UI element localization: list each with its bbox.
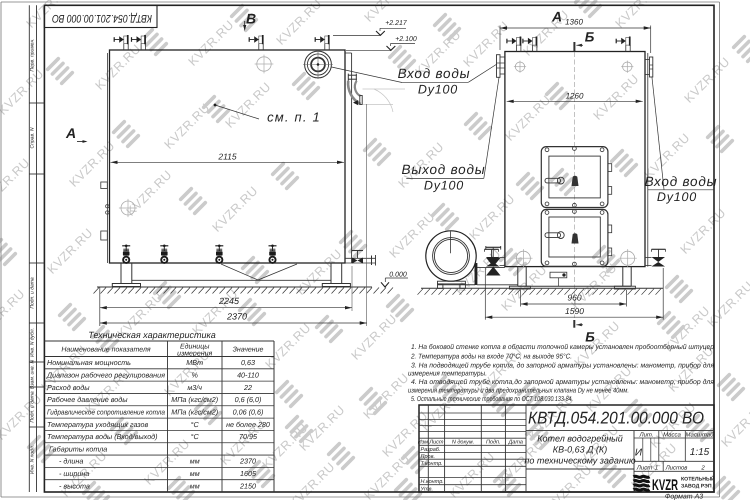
svg-text:Т.контр.: Т.контр. — [421, 461, 443, 467]
svg-text:- длина: - длина — [59, 457, 83, 466]
svg-text:Dy100: Dy100 — [657, 190, 697, 204]
svg-text:1360: 1360 — [565, 18, 583, 27]
svg-text:Выход воды: Выход воды — [402, 162, 486, 177]
svg-text:КВТД.054.201.00.000 ВО: КВТД.054.201.00.000 ВО — [52, 12, 152, 24]
svg-text:Взам. инв. N: Взам. инв. N — [29, 360, 35, 390]
svg-text:КВ-0,63 Д (К): КВ-0,63 Д (К) — [553, 445, 607, 455]
svg-text:мм: мм — [190, 457, 200, 466]
svg-text:4. На отводящей трубе котла,д: 4. На отводящей трубе котла,до запорной … — [411, 378, 714, 386]
svg-text:Масса: Масса — [663, 431, 681, 438]
svg-text:Номинальная мощность: Номинальная мощность — [47, 358, 131, 367]
svg-text:Наименование показателя: Наименование показателя — [61, 347, 151, 354]
svg-text:Гидравлическое сопротивление к: Гидравлическое сопротивление котла — [47, 407, 165, 416]
svg-text:1605: 1605 — [240, 469, 257, 478]
svg-text:2370: 2370 — [226, 312, 247, 322]
svg-text:2: 2 — [700, 464, 705, 471]
svg-text:МПа (кгс/см2): МПа (кгс/см2) — [171, 407, 218, 416]
svg-text:2. Температура воды на входе: 2. Температура воды на входе 70°С, на вы… — [410, 353, 572, 361]
svg-text:Подп. и дата: Подп. и дата — [29, 391, 35, 423]
svg-text:2115: 2115 — [217, 152, 237, 162]
svg-text:Единицы: Единицы — [180, 342, 210, 350]
svg-text:Вход воды: Вход воды — [398, 66, 471, 81]
svg-text:1260: 1260 — [566, 92, 584, 101]
svg-text:Б: Б — [585, 330, 595, 345]
svg-text:2150: 2150 — [239, 481, 256, 490]
svg-text:м3/ч: м3/ч — [187, 383, 202, 392]
svg-text:В: В — [246, 11, 256, 27]
svg-text:Изм.: Изм. — [418, 440, 430, 446]
svg-text:960: 960 — [567, 293, 581, 303]
svg-text:Дата: Дата — [507, 440, 523, 446]
svg-text:измерения температуры.: измерения температуры. — [408, 371, 487, 378]
svg-text:0.000: 0.000 — [389, 272, 407, 279]
svg-text:МПа (кгс/см2): МПа (кгс/см2) — [171, 395, 218, 404]
svg-text:Инв. N подл.: Инв. N подл. — [29, 445, 35, 474]
svg-text:Подп.: Подп. — [486, 440, 501, 446]
svg-text:1: 1 — [655, 464, 658, 471]
svg-text:Н.контр.: Н.контр. — [421, 479, 444, 485]
svg-text:- ширина: - ширина — [59, 469, 89, 478]
svg-text:°С: °С — [191, 432, 200, 441]
svg-text:Масштаб: Масштаб — [685, 431, 714, 438]
svg-text:Расход воды: Расход воды — [47, 383, 90, 392]
svg-text:Значение: Значение — [233, 347, 264, 354]
svg-text:Справ. N: Справ. N — [29, 127, 35, 148]
svg-text:KVZR: KVZR — [652, 477, 678, 494]
svg-text:КВТД.054.201.00.000 ВО: КВТД.054.201.00.000 ВО — [528, 409, 704, 428]
svg-text:см. п. 1: см. п. 1 — [267, 110, 321, 125]
svg-text:Температура уходящих газов: Температура уходящих газов — [47, 420, 149, 429]
svg-text:А: А — [65, 125, 76, 141]
svg-text:1590: 1590 — [565, 306, 584, 316]
svg-text:МВт: МВт — [186, 358, 203, 367]
svg-text:+2.100: +2.100 — [395, 36, 417, 43]
svg-text:Лист: Лист — [636, 464, 652, 471]
svg-text:Перв. примен.: Перв. примен. — [29, 38, 35, 71]
svg-text:0,06 (0,6): 0,06 (0,6) — [233, 407, 264, 416]
svg-text:3. На подводящей трубе котла,: 3. На подводящей трубе котла, до запорно… — [411, 361, 714, 369]
svg-text:2245: 2245 — [218, 296, 240, 306]
svg-text:- высота: - высота — [59, 481, 90, 490]
svg-text:Техническая характеристика: Техническая характеристика — [88, 330, 215, 340]
svg-text:Рабочее давление воды: Рабочее давление воды — [47, 395, 128, 404]
svg-text:2370: 2370 — [239, 457, 256, 466]
svg-text:мм: мм — [190, 481, 200, 490]
svg-text:Формат А3: Формат А3 — [665, 494, 703, 500]
svg-text:Инв. N дубл.: Инв. N дубл. — [29, 328, 35, 357]
svg-text:Dy100: Dy100 — [418, 83, 458, 97]
svg-text:измерения температуры и два пр: измерения температуры и два предохраните… — [408, 387, 629, 395]
svg-text:А: А — [551, 9, 562, 25]
svg-text:Пров.: Пров. — [421, 454, 436, 460]
svg-text:Лист: Лист — [428, 440, 444, 446]
svg-text:не более 280: не более 280 — [226, 420, 270, 429]
svg-text:22: 22 — [243, 383, 252, 392]
svg-text:+2.217: +2.217 — [385, 20, 408, 27]
svg-text:измерения: измерения — [177, 350, 212, 357]
svg-text:70/95: 70/95 — [239, 432, 258, 441]
svg-text:Утв.: Утв. — [420, 487, 434, 493]
svg-text:Б: Б — [585, 29, 595, 44]
svg-text:1:15: 1:15 — [690, 447, 710, 458]
svg-text:40-110: 40-110 — [237, 370, 259, 379]
svg-text:Диапазон рабочего регулировани: Диапазон рабочего регулирования — [46, 371, 165, 380]
svg-text:Вход воды: Вход воды — [645, 174, 718, 189]
svg-text:Температура воды (Вход/выход): Температура воды (Вход/выход) — [47, 432, 158, 441]
svg-text:И: И — [635, 448, 643, 459]
svg-text:Габариты котла: Габариты котла — [49, 444, 107, 453]
svg-text:ЗАВОД РЭП: ЗАВОД РЭП — [681, 484, 712, 490]
svg-text:N докум.: N докум. — [452, 440, 474, 446]
svg-text:°С: °С — [191, 420, 200, 429]
svg-text:5. Остальные технические треб: 5. Остальные технические требования по О… — [411, 395, 573, 403]
svg-text:мм: мм — [190, 469, 200, 478]
svg-text:Лит.: Лит. — [638, 431, 653, 438]
svg-text:1. На боковой стенке котла в: 1. На боковой стенке котла в области топ… — [411, 343, 714, 351]
svg-text:0,63: 0,63 — [241, 358, 255, 367]
svg-text:Листов: Листов — [665, 464, 688, 471]
svg-text:0,6 (6,0): 0,6 (6,0) — [235, 395, 262, 404]
svg-text:Разраб.: Разраб. — [421, 446, 441, 453]
svg-text:КОТЕЛЬНЫЙ: КОТЕЛЬНЫЙ — [681, 476, 715, 483]
svg-text:Подп. и дата: Подп. и дата — [29, 277, 35, 309]
svg-text:Dy100: Dy100 — [424, 179, 464, 193]
svg-text:по техническому заданию: по техническому заданию — [524, 455, 635, 465]
svg-text:%: % — [191, 370, 198, 379]
svg-text:Котел водогрейный: Котел водогрейный — [537, 433, 623, 443]
